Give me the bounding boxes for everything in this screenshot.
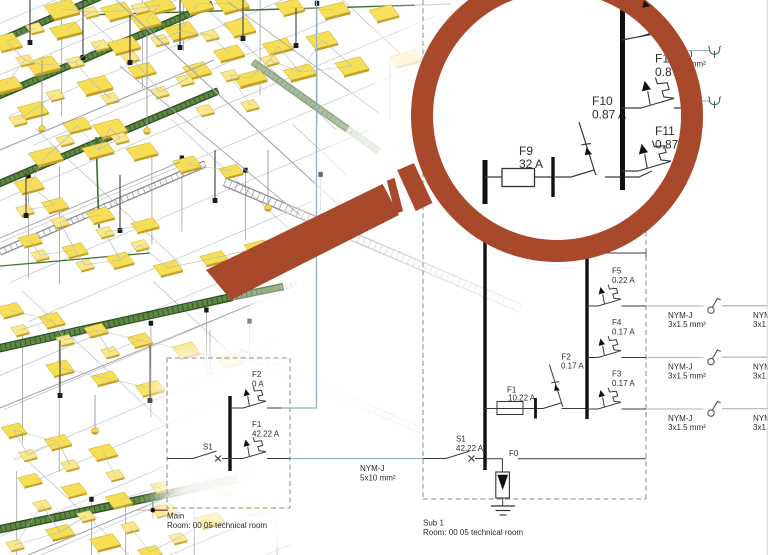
svg-text:F3: F3: [612, 370, 622, 379]
svg-text:0.17 A: 0.17 A: [612, 328, 635, 337]
svg-text:0.17 A: 0.17 A: [612, 379, 635, 388]
svg-text:NYM-J: NYM-J: [360, 464, 384, 473]
svg-text:F11: F11: [655, 124, 675, 138]
svg-text:32 A: 32 A: [519, 157, 543, 171]
svg-text:F10: F10: [592, 94, 613, 108]
svg-text:Room: 00 05 technical room: Room: 00 05 technical room: [423, 528, 523, 537]
svg-text:3x1.5 mm²: 3x1.5 mm²: [753, 320, 768, 329]
svg-text:0.17 A: 0.17 A: [561, 362, 584, 371]
svg-text:S1: S1: [203, 443, 213, 452]
svg-text:NYM-J: NYM-J: [753, 311, 768, 320]
svg-text:NYM-J: NYM-J: [753, 363, 768, 372]
svg-text:3x1.5 mm²: 3x1.5 mm²: [668, 372, 706, 381]
svg-text:NYM-J: NYM-J: [668, 414, 692, 423]
svg-text:F4: F4: [612, 318, 622, 327]
svg-text:3x1.5 mm²: 3x1.5 mm²: [668, 423, 706, 432]
svg-text:Room: 00 05 technical room: Room: 00 05 technical room: [167, 521, 267, 530]
svg-text:Main: Main: [167, 512, 184, 521]
svg-text:NYM-J: NYM-J: [668, 363, 692, 372]
svg-text:42.22 A: 42.22 A: [252, 430, 280, 439]
svg-text:3x1.5 mm²: 3x1.5 mm²: [668, 320, 706, 329]
svg-text:S1: S1: [456, 435, 466, 444]
svg-text:0.22 A: 0.22 A: [612, 276, 635, 285]
svg-text:Sub 1: Sub 1: [423, 519, 444, 528]
svg-text:10.22 A: 10.22 A: [508, 394, 536, 403]
svg-text:F2: F2: [562, 353, 572, 362]
svg-text:5x10 mm²: 5x10 mm²: [360, 474, 396, 483]
svg-text:F9: F9: [519, 144, 533, 158]
svg-text:3x1.5 mm²: 3x1.5 mm²: [753, 372, 768, 381]
svg-text:F2: F2: [252, 370, 262, 379]
svg-text:F0: F0: [509, 449, 519, 458]
svg-text:42.22 A: 42.22 A: [456, 444, 484, 453]
svg-text:3x1.5 mm²: 3x1.5 mm²: [753, 423, 768, 432]
svg-text:NYM-J: NYM-J: [753, 414, 768, 423]
svg-text:F5: F5: [612, 267, 622, 276]
svg-text:F1: F1: [252, 420, 262, 429]
svg-text:0 A: 0 A: [252, 380, 264, 389]
svg-text:NYM-J: NYM-J: [668, 311, 692, 320]
